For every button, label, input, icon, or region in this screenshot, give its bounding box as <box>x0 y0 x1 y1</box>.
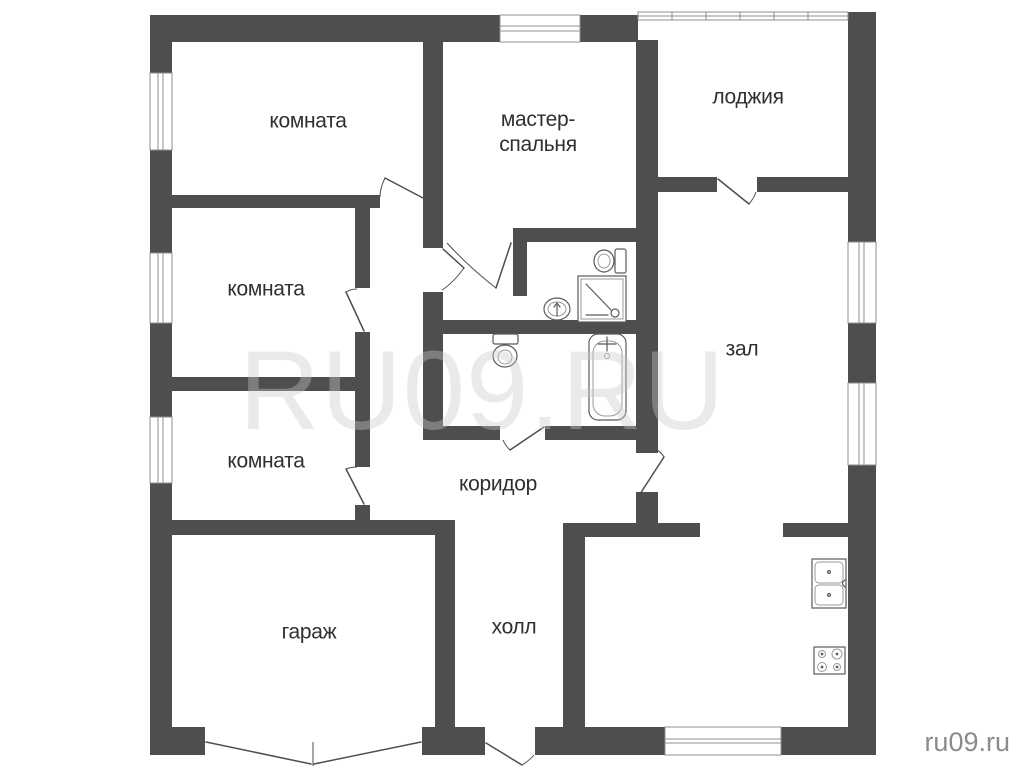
door-room-lower-left <box>346 467 364 504</box>
room-label-zal: зал <box>726 337 759 362</box>
room-label-koridor: коридор <box>459 472 537 497</box>
door-master-bedroom <box>447 243 511 288</box>
master-label-line-2: спальня <box>499 133 577 156</box>
room-label-holl: холл <box>492 615 537 640</box>
master-label-line-1: мастер- <box>501 108 575 131</box>
door-room-mid-left <box>346 289 364 331</box>
shower-cabin-icon <box>578 276 626 322</box>
door-bathroom <box>503 427 544 450</box>
window-right-1 <box>848 242 876 323</box>
kitchen-sink-icon <box>812 559 846 608</box>
washbasin-icon <box>544 298 570 320</box>
door-entrance <box>486 743 534 765</box>
room-label-loggia: лоджия <box>712 85 783 110</box>
floor-plan: комната комната комната мастер-спальня л… <box>0 0 1024 768</box>
toilet-icon <box>594 249 626 273</box>
window-top-master <box>500 15 580 42</box>
loggia-glazing <box>638 12 848 20</box>
door-garage-double <box>206 742 421 766</box>
watermark-site-text: ru09.ru <box>924 727 1010 758</box>
door-living-hall <box>640 450 664 494</box>
room-label-garazh: гараж <box>282 620 337 645</box>
toilet-icon-2 <box>493 334 518 367</box>
window-right-2 <box>848 383 876 465</box>
stove-icon <box>814 647 845 674</box>
window-bottom <box>665 727 781 755</box>
window-left-2 <box>150 253 172 323</box>
window-left-1 <box>150 73 172 150</box>
window-left-3 <box>150 417 172 483</box>
room-label-komnata-1: комната <box>269 109 346 134</box>
bathtub-icon <box>589 334 626 420</box>
door-loggia <box>718 179 756 204</box>
room-label-komnata-2: комната <box>227 277 304 302</box>
door-room-top-left <box>380 178 423 198</box>
door-bath-lobby <box>442 249 464 290</box>
room-label-master-bedroom: мастер-спальня <box>499 107 577 157</box>
room-label-komnata-3: комната <box>227 449 304 474</box>
